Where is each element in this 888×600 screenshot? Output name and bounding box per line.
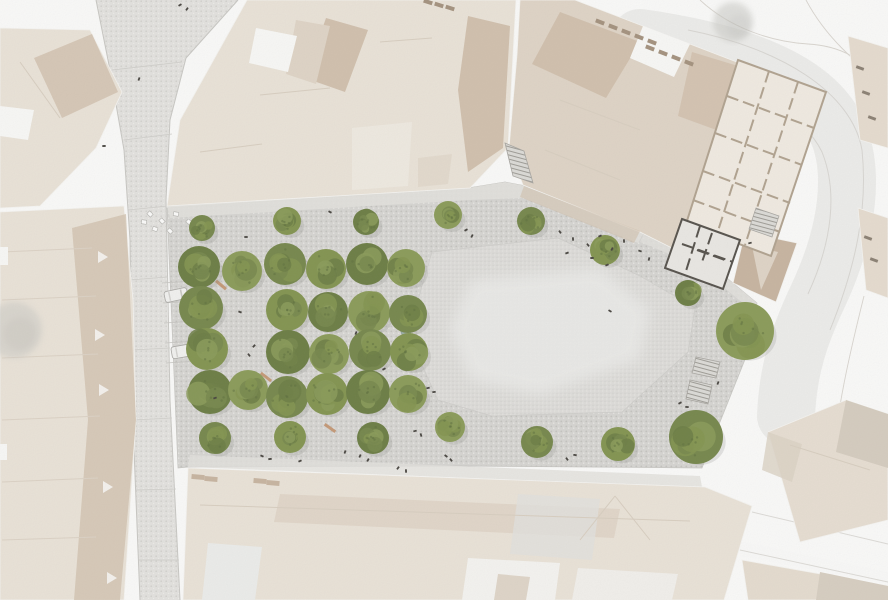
plan-layers	[0, 0, 888, 600]
texture-overlay	[0, 0, 888, 600]
site-plan-image: Architectural site plan render – aerial …	[0, 0, 888, 600]
site-plan-canvas	[0, 0, 888, 600]
